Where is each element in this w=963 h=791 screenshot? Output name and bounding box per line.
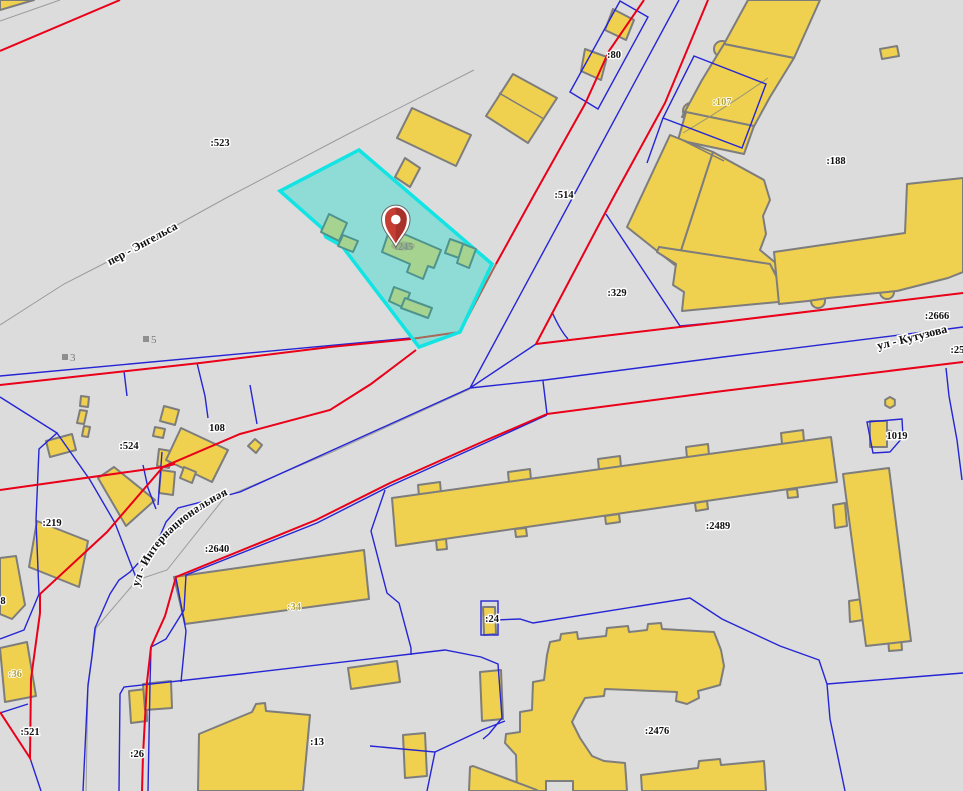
svg-text::24: :24 xyxy=(485,614,500,625)
svg-text:3: 3 xyxy=(70,352,76,364)
svg-text::36: :36 xyxy=(8,669,22,680)
svg-text::2640: :2640 xyxy=(205,544,230,555)
svg-text::524: :524 xyxy=(119,441,139,452)
svg-text::2666: :2666 xyxy=(925,311,950,322)
svg-text::80: :80 xyxy=(607,50,621,61)
svg-text::514: :514 xyxy=(554,190,574,201)
svg-text::523: :523 xyxy=(210,138,229,149)
svg-text::26: :26 xyxy=(130,749,144,760)
svg-text::188: :188 xyxy=(826,156,845,167)
svg-text::258: :258 xyxy=(950,345,963,356)
svg-text:1019: 1019 xyxy=(887,431,908,442)
svg-text:8: 8 xyxy=(0,596,5,607)
svg-text::521: :521 xyxy=(20,727,39,738)
svg-text::219: :219 xyxy=(42,518,61,529)
svg-text::13: :13 xyxy=(310,737,324,748)
svg-text::2476: :2476 xyxy=(645,726,670,737)
svg-text::2489: :2489 xyxy=(706,521,731,532)
svg-text:5: 5 xyxy=(151,334,157,346)
svg-text::329: :329 xyxy=(607,288,626,299)
svg-text::107: :107 xyxy=(712,97,731,108)
svg-text:108: 108 xyxy=(209,423,225,434)
svg-text::34: :34 xyxy=(287,602,302,613)
